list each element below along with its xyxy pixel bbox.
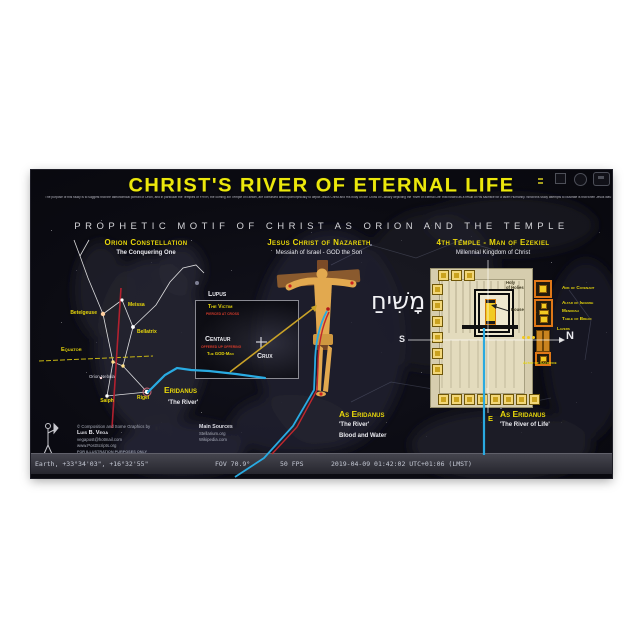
bread-label: Table of Bread <box>562 316 592 321</box>
gate-icon <box>529 394 540 405</box>
gate-icon <box>451 270 462 281</box>
gate-icon <box>464 394 475 405</box>
hebrew-mashiach: מָשִׁיחַ <box>371 288 446 315</box>
sanctuary-pillar <box>485 299 496 325</box>
holy-label: Holyof Holies <box>506 281 524 291</box>
lavers-label: Lavers <box>557 326 570 331</box>
orion-heading: Orion Constellation <box>61 239 231 248</box>
crux-label: Crux <box>257 353 273 361</box>
record-icon <box>574 173 587 186</box>
camera-icon <box>593 172 610 186</box>
christ-heading: Jesus Christ of Nazareth <box>234 239 404 248</box>
incense-label: Altar of Incense <box>562 300 593 305</box>
credit-site[interactable]: www.PostScripts.org <box>77 444 116 449</box>
compass-east-label: E <box>488 415 493 423</box>
yellow-dash-icon <box>538 182 543 184</box>
gate-icon <box>516 394 527 405</box>
status-fov: FOV 70.9° <box>215 460 250 468</box>
eridanus-sub-label: 'The River' <box>168 400 198 407</box>
gate-icon <box>438 270 449 281</box>
centaur-note: OFFERED UP OFFERING <box>201 346 241 350</box>
status-datetime: 2019-04-09 01:42:02 UTC+01:06 (LMST) <box>331 460 472 468</box>
temple-heading: 4th Temple - Man of Ezekiel <box>408 239 578 248</box>
gate-icon <box>464 270 475 281</box>
gate-icon <box>432 348 443 359</box>
star-label-bellatrix: Bellatrix <box>137 330 157 336</box>
gate-icon <box>477 394 488 405</box>
gate-icon <box>490 394 501 405</box>
compass-south-label: S <box>399 334 405 344</box>
house-label: House <box>511 308 524 313</box>
star-label-betelgeuse: Betelgeuse <box>41 311 97 317</box>
star-label-meissa: Meissa <box>128 303 145 309</box>
temple-as-eridanus-label: As Eridanus <box>500 410 546 420</box>
ark-label: Ark of Covenant <box>562 285 594 290</box>
gate-icon <box>438 394 449 405</box>
pillar-jachin-icon <box>536 330 543 352</box>
poster-title: CHRIST'S RIVER OF ETERNAL LIFE <box>31 176 612 197</box>
blood-and-water-label: Blood and Water <box>339 433 386 440</box>
victim-note: PIERCED AT CROSS <box>206 313 239 317</box>
orion-nebula-label: Orion Nebula <box>89 375 115 380</box>
status-fps: 50 FPS <box>280 460 303 468</box>
frame-icon <box>555 173 566 184</box>
yellow-dash-icon <box>538 178 543 180</box>
vega-logo <box>39 421 59 457</box>
credit-author: Luis B. Vega <box>77 430 108 436</box>
credit-source-2[interactable]: Wikipedia.com <box>199 438 227 443</box>
temple-river-label: 'The River of Life' <box>500 422 550 429</box>
star-label-saiph: Saiph <box>89 399 125 405</box>
credit-sources-title: Main Sources <box>199 425 233 431</box>
star-label-rigel: Rigel <box>137 396 149 402</box>
christ-subheading: Messiah of Israel - GOD the Son <box>234 250 404 257</box>
gate-icon <box>451 394 462 405</box>
equator-label: Equator <box>61 347 82 353</box>
menorah-label: Menorah <box>562 308 579 313</box>
compass-north-label: N <box>566 330 574 342</box>
pillar-boaz-icon <box>543 330 550 352</box>
poster: Lupus The Victim PIERCED AT CROSS Centau… <box>31 170 612 478</box>
christ-river-label: 'The River' <box>339 422 369 429</box>
poster-subtitle: PROPHETIC MOTIF OF CHRIST AS ORION AND T… <box>31 222 612 233</box>
ark-of-covenant-icon <box>534 280 552 298</box>
gate-icon <box>432 364 443 375</box>
lupus-centaur-inset: Lupus The Victim PIERCED AT CROSS Centau… <box>195 300 299 379</box>
gate-icon <box>432 332 443 343</box>
temple-plan: Holyof Holies House <box>430 268 550 406</box>
gate-icon <box>432 316 443 327</box>
temple-subheading: Millennial Kingdom of Christ <box>408 250 578 257</box>
godman-label: The GOD-Man <box>207 352 234 357</box>
lupus-label: Lupus <box>208 291 226 299</box>
eridanus-label: Eridanus <box>164 386 197 396</box>
altar-sacrifice-label: Altar of Sacrifice <box>523 360 557 365</box>
furniture-icons <box>534 299 553 327</box>
victim-label: The Victim <box>208 305 233 311</box>
status-bar: Earth, +33°34'03", +16°32'55" FOV 70.9° … <box>31 453 612 474</box>
orion-subheading: The Conquering One <box>61 250 231 257</box>
gate-icon <box>503 394 514 405</box>
centaur-label: Centaur <box>205 336 231 344</box>
status-location: Earth, +33°34'03", +16°32'55" <box>35 460 149 468</box>
intro-paragraph: The purpose of this study is to suggest … <box>45 196 596 200</box>
christ-as-eridanus-label: As Eridanus <box>339 410 385 420</box>
